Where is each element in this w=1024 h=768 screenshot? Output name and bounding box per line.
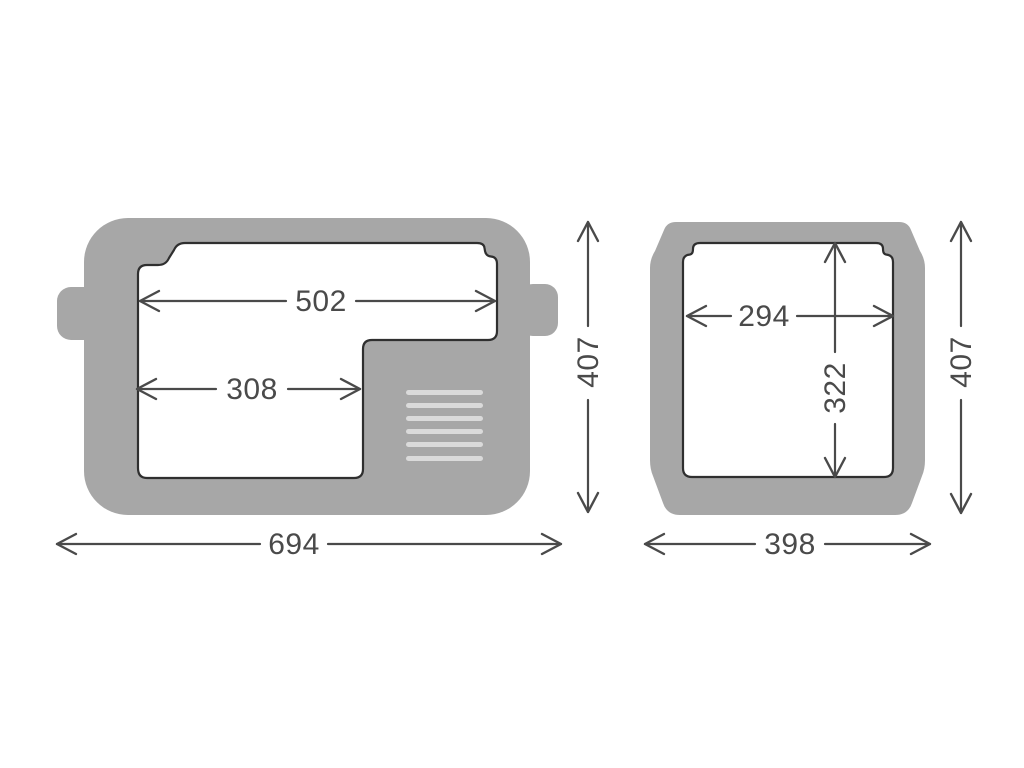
vent-slat	[406, 442, 483, 447]
dimension-label-322: 322	[819, 362, 852, 414]
vent-slat	[406, 390, 483, 395]
dimension-outer-width-front: 398	[645, 528, 930, 561]
dimension-outer-height-front: 407	[945, 222, 978, 513]
dimension-label-398: 398	[764, 528, 816, 561]
dimension-label-294: 294	[738, 300, 790, 333]
vent-slat	[406, 456, 483, 461]
dimension-outer-height-side: 407	[572, 222, 605, 512]
dimension-label-308: 308	[226, 373, 278, 406]
cooler-dimension-diagram: 502 308 694 407 294 322 398 407	[0, 0, 1024, 768]
dimension-outer-width-side: 694	[57, 528, 561, 561]
dimension-label-502: 502	[295, 285, 347, 318]
dimension-drawing-page: 502 308 694 407 294 322 398 407	[0, 0, 1024, 768]
front-view-interior	[683, 243, 893, 477]
vent-slat	[406, 403, 483, 408]
dimension-label-407-left: 407	[572, 336, 605, 388]
vent-slat	[406, 416, 483, 421]
front-view	[650, 222, 925, 515]
dimension-label-407-right: 407	[945, 336, 978, 388]
dimension-label-694: 694	[268, 528, 320, 561]
vent-slat	[406, 429, 483, 434]
side-view	[57, 218, 558, 515]
